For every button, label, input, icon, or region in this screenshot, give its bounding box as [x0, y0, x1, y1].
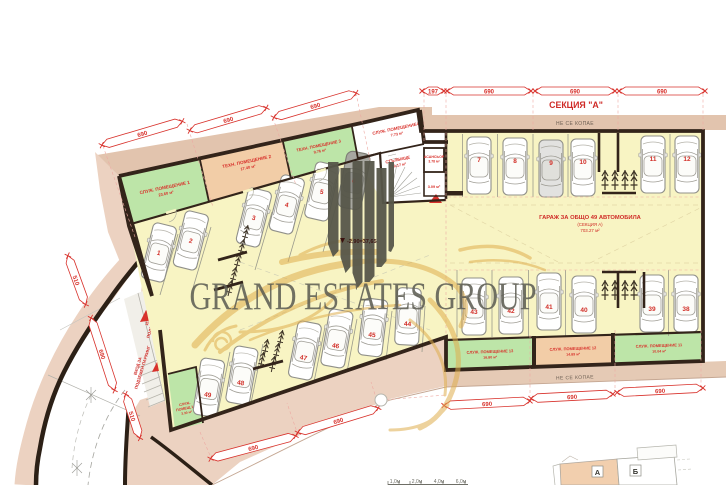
svg-text:690: 690 [657, 90, 668, 96]
svg-text:41: 41 [545, 304, 553, 311]
svg-text:197: 197 [428, 90, 439, 96]
svg-text:39: 39 [648, 306, 656, 313]
svg-text:ГАРАЖ ЗА ОБЩО 49 АВТОМОБИЛА: ГАРАЖ ЗА ОБЩО 49 АВТОМОБИЛА [539, 215, 641, 221]
svg-text:49: 49 [204, 391, 213, 399]
svg-text:3.09 м²: 3.09 м² [428, 185, 441, 189]
svg-text:Б: Б [633, 467, 639, 476]
svg-text:А: А [595, 468, 601, 477]
svg-text:690: 690 [482, 402, 493, 409]
svg-text:40: 40 [580, 307, 588, 314]
svg-text:7: 7 [477, 157, 481, 164]
svg-text:10: 10 [579, 159, 587, 166]
svg-text:690: 690 [567, 395, 578, 402]
svg-text:СЕКЦИЯ "А": СЕКЦИЯ "А" [549, 100, 603, 110]
svg-text:8: 8 [513, 158, 517, 165]
svg-text:9: 9 [549, 160, 553, 167]
svg-text:11: 11 [650, 156, 657, 163]
svg-text:38: 38 [682, 306, 690, 313]
svg-text:45: 45 [368, 332, 376, 340]
svg-text:GRAND ESTATES GROUP: GRAND ESTATES GROUP [190, 275, 537, 318]
svg-text:НЕ СЕ КОПАЕ: НЕ СЕ КОПАЕ [556, 121, 594, 127]
svg-text:690: 690 [484, 90, 495, 96]
svg-text:690: 690 [655, 389, 666, 396]
svg-text:690: 690 [570, 90, 581, 96]
svg-text:-2,90=37,65: -2,90=37,65 [347, 239, 377, 245]
svg-text:12: 12 [683, 156, 691, 163]
svg-text:(СЕКЦИЯ А): (СЕКЦИЯ А) [577, 222, 603, 227]
svg-text:703.27 м²: 703.27 м² [580, 228, 600, 233]
